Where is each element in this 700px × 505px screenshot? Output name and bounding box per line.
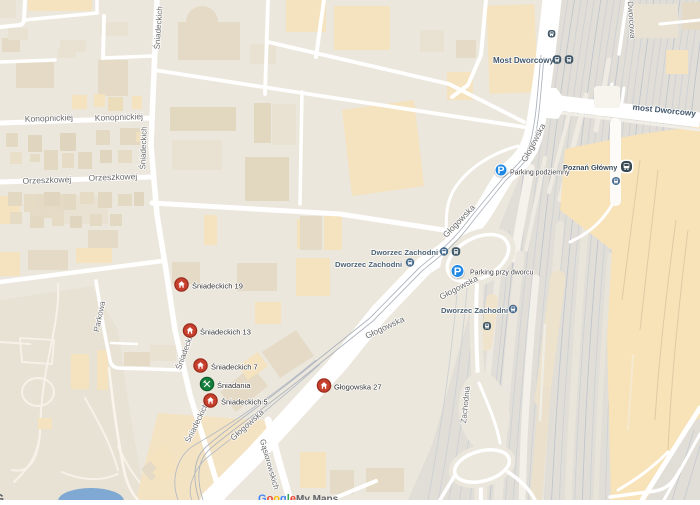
svg-text:Śniadeckich 13: Śniadeckich 13	[200, 328, 251, 337]
svg-text:Orzeszkowej: Orzeszkowej	[88, 171, 137, 183]
svg-text:Konopnickiej: Konopnickiej	[95, 111, 144, 123]
svg-text:My Maps: My Maps	[296, 494, 339, 500]
svg-text:Most Dworcowy: Most Dworcowy	[493, 56, 554, 65]
svg-text:Poznań Główny: Poznań Główny	[563, 163, 618, 172]
svg-text:Śniadeckich: Śniadeckich	[138, 126, 149, 169]
svg-text:Orzeszkowej: Orzeszkowej	[22, 174, 71, 186]
svg-text:Parking przy dworcu: Parking przy dworcu	[470, 270, 534, 277]
svg-text:Dworzec Zachodni: Dworzec Zachodni	[441, 306, 508, 315]
svg-text:Google: Google	[258, 493, 296, 500]
svg-text:Śniadeckich 7: Śniadeckich 7	[211, 363, 258, 372]
svg-text:Śniadeckich 5: Śniadeckich 5	[221, 398, 268, 407]
svg-text:P: P	[497, 165, 504, 177]
svg-text:P: P	[454, 266, 462, 278]
svg-text:G: G	[0, 491, 4, 500]
svg-text:Głogowska 27: Głogowska 27	[334, 383, 382, 392]
svg-text:Dworzec Zachodni: Dworzec Zachodni	[335, 260, 402, 269]
svg-text:Dworzec Zachodni: Dworzec Zachodni	[371, 248, 438, 257]
svg-text:Śniadeckich 19: Śniadeckich 19	[192, 282, 243, 291]
svg-text:Śniadania: Śniadania	[217, 381, 251, 390]
svg-text:Parking podziemny: Parking podziemny	[510, 170, 570, 177]
svg-text:Konopnickiej: Konopnickiej	[25, 112, 74, 124]
